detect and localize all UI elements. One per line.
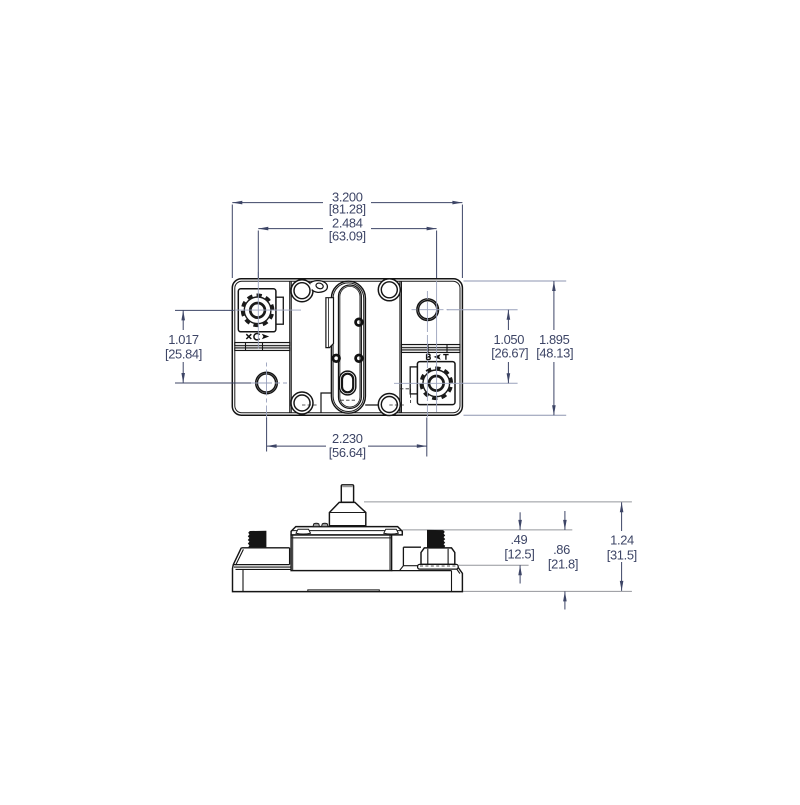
svg-text:[31.5]: [31.5] <box>607 547 637 562</box>
svg-text:[56.64]: [56.64] <box>329 445 366 460</box>
svg-text:1.24: 1.24 <box>610 532 634 547</box>
svg-text:1.017: 1.017 <box>168 332 199 347</box>
svg-text:[12.5]: [12.5] <box>504 547 534 562</box>
svg-text:[48.13]: [48.13] <box>536 345 573 360</box>
svg-text:[21.8]: [21.8] <box>548 556 578 571</box>
svg-text:.86: .86 <box>553 542 570 557</box>
svg-text:.49: .49 <box>510 532 527 547</box>
svg-text:[26.67]: [26.67] <box>491 345 528 360</box>
svg-text:[81.28]: [81.28] <box>329 202 366 217</box>
svg-text:[25.84]: [25.84] <box>165 347 202 362</box>
svg-text:[63.09]: [63.09] <box>329 229 366 244</box>
